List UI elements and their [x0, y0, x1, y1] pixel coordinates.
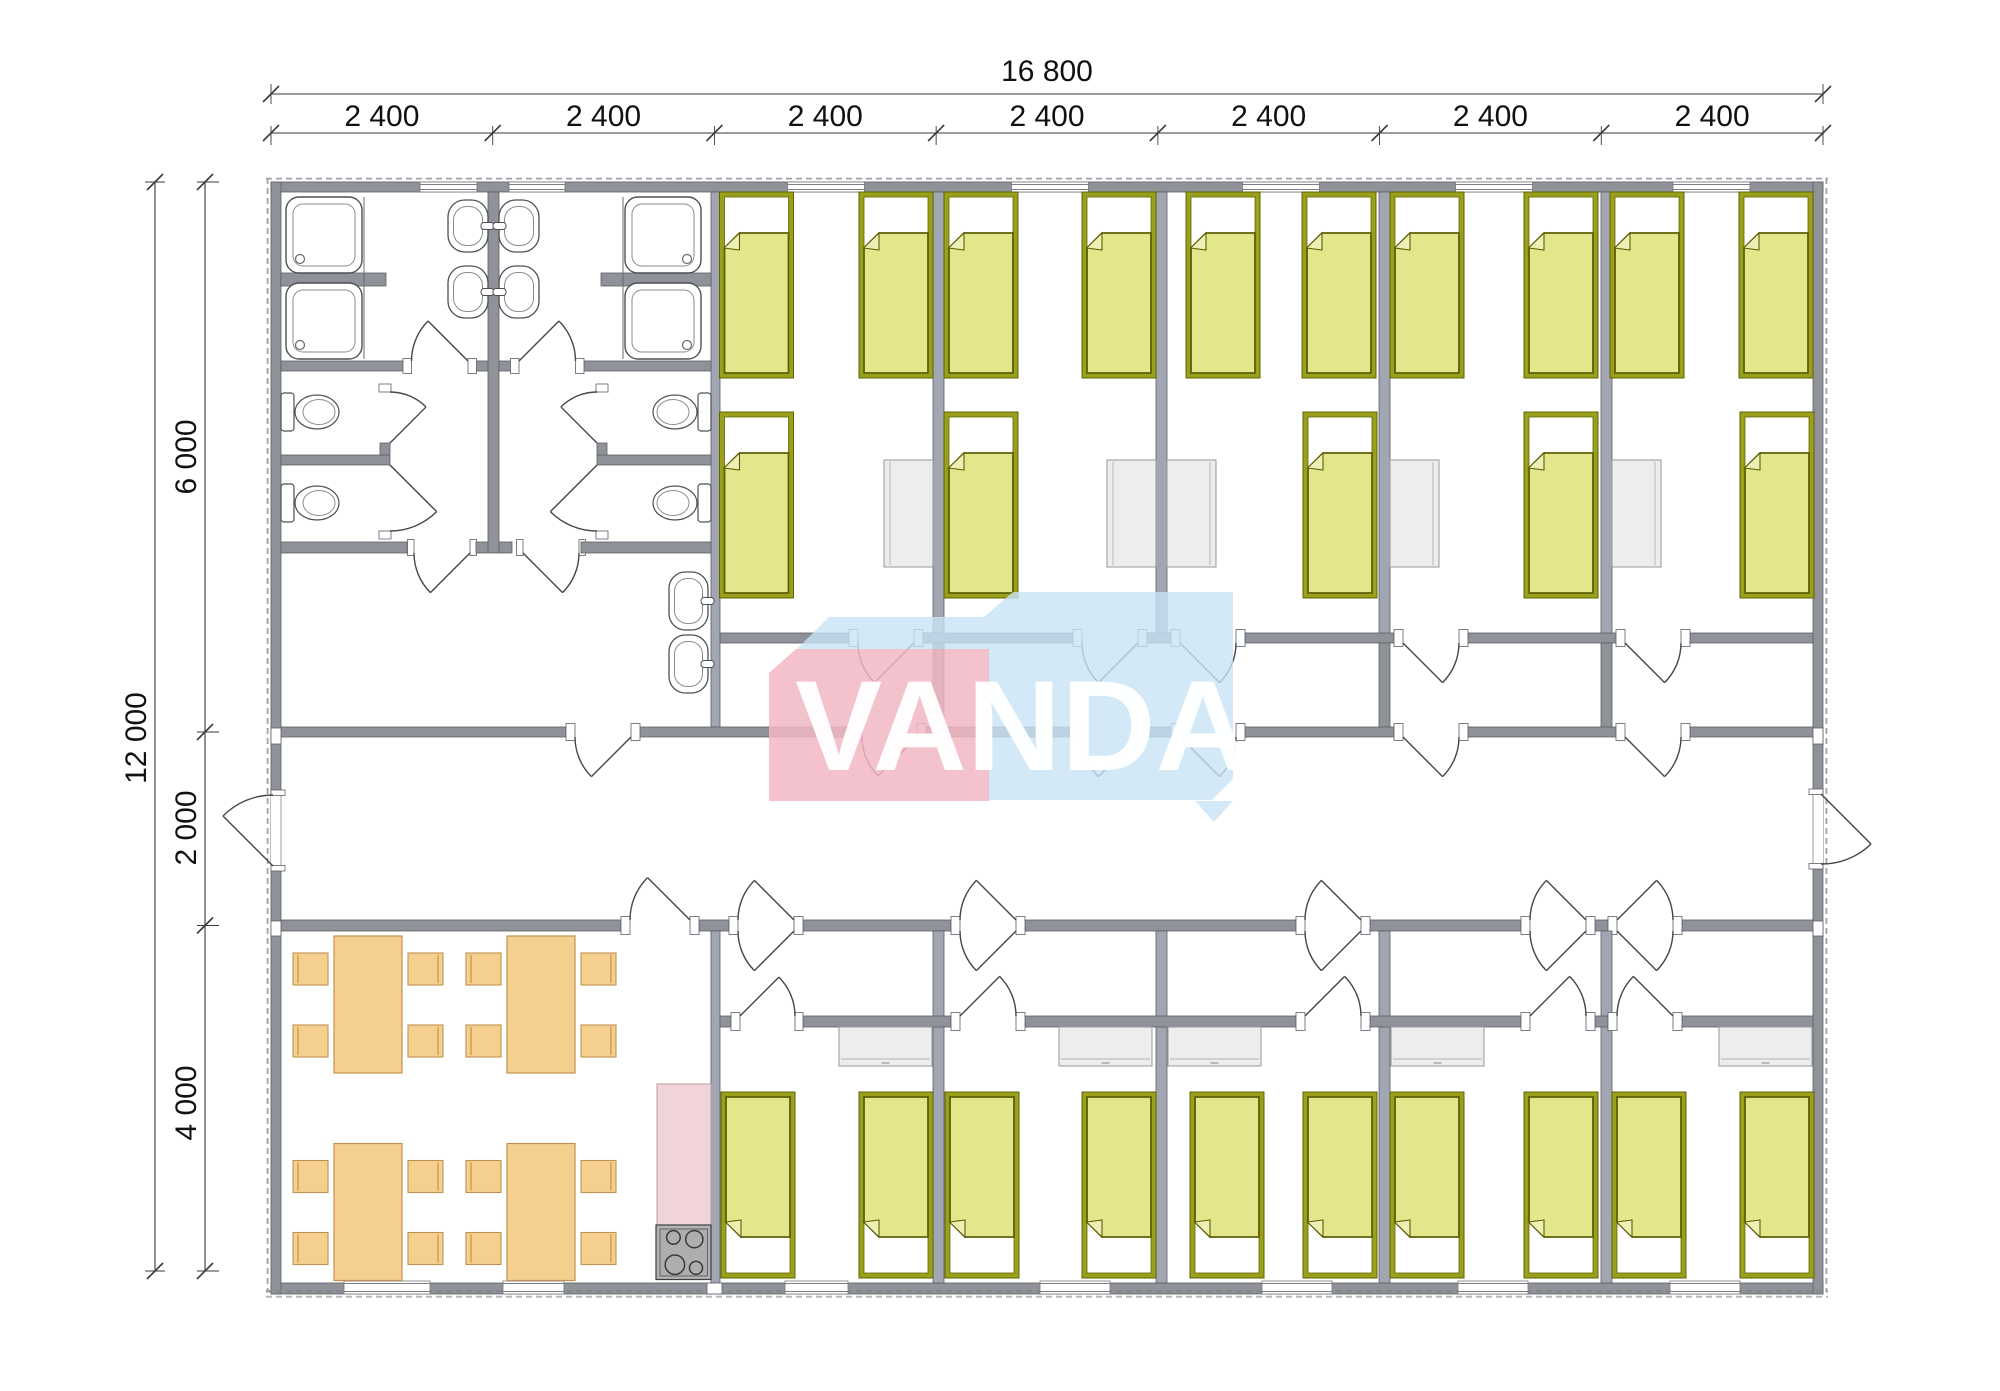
svg-text:2 400: 2 400 — [344, 100, 419, 133]
svg-text:2 400: 2 400 — [788, 100, 863, 133]
svg-text:2 000: 2 000 — [170, 790, 203, 865]
svg-text:2 400: 2 400 — [1009, 100, 1084, 133]
svg-text:2 400: 2 400 — [1231, 100, 1306, 133]
svg-text:2 400: 2 400 — [1453, 100, 1528, 133]
svg-text:2 400: 2 400 — [1675, 100, 1750, 133]
svg-text:2 400: 2 400 — [566, 100, 641, 133]
svg-text:VANDA: VANDA — [795, 655, 1250, 798]
svg-text:4 000: 4 000 — [170, 1065, 203, 1140]
svg-text:6 000: 6 000 — [170, 419, 203, 494]
svg-text:16 800: 16 800 — [1001, 55, 1093, 88]
svg-text:12 000: 12 000 — [120, 692, 153, 784]
